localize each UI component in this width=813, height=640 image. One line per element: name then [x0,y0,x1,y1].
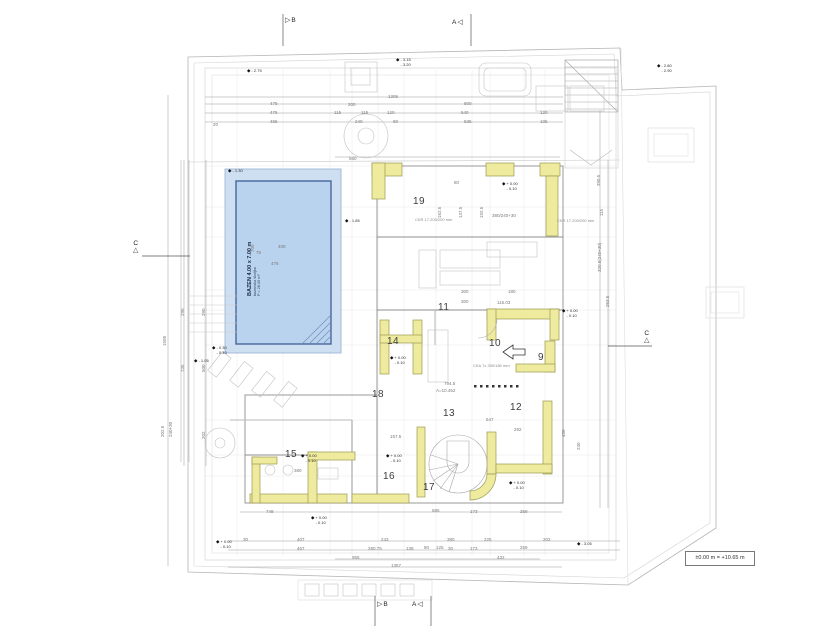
level-marker-icon: ◆ [216,540,219,545]
level-values: + 0.00- 0.10 [390,454,401,463]
room-number-label: 13 [443,408,455,419]
dimension-label: 243 [381,537,389,542]
dimension-label: 300 [461,289,469,294]
annotation-note: CKA 7x 250/180 mm [473,363,510,368]
dimension-label: 432 [497,555,505,560]
dimension-label: 290 [180,308,185,316]
level-value: - 2.75 [251,69,261,74]
section-label: A [452,19,456,26]
room-number-label: 14 [387,336,399,347]
level-marker-icon: ◆ [577,542,580,547]
level-marker-icon: ◆ [396,58,399,63]
room-number-label: 10 [489,338,501,349]
level-value: - 1.05 [198,359,208,364]
dimension-label: 430 [561,429,566,437]
dimension-label: 202 [201,431,206,439]
dimension-label: 200 [348,102,356,107]
dimension-label: 30 [448,546,453,551]
level-values: + 0.00- 0.10 [394,356,405,365]
annotation-layer: 1911141091813121516171305475475455202001… [0,0,813,640]
annotation-note: CKR 17.200/200 mm [557,218,594,223]
dimension-label: 400 [278,244,286,249]
level-marker: ◆- 2.75 [247,69,262,74]
level-marker: ◆- 1.05 [194,359,209,364]
room-number-label: 19 [413,196,425,207]
room-number-label: 16 [383,471,395,482]
level-value: - 0.10 [506,187,517,192]
dimension-label: 794.5 [444,381,455,386]
level-marker-icon: ◆ [301,454,304,459]
level-value: - 1.30 [232,169,242,174]
level-marker-icon: ◆ [228,169,231,174]
dimension-label: 380 [294,468,302,473]
dimension-label: 120 [387,110,395,115]
level-values: - 2.75 [251,69,261,74]
level-values: - 1.05 [198,359,208,364]
level-value: - 3.05 [581,542,591,547]
section-label: B [383,601,387,608]
dimension-label: 20 [213,122,218,127]
dimension-label: 1357 [391,563,401,568]
level-marker-icon: ◆ [194,359,197,364]
level-values: - 0.30- 0.40 [216,346,226,355]
level-value: - 2.90 [661,69,671,74]
level-marker: ◆+ 0.00- 0.10 [390,356,406,365]
level-marker: ◆+ 0.00- 0.10 [311,516,327,525]
section-marker-a: A◁ [412,601,423,608]
level-value: - 0.10 [305,459,316,464]
room-number-label: 11 [438,302,449,313]
level-marker-icon: ◆ [386,454,389,459]
room-number-label: 18 [372,389,384,400]
level-marker: ◆+ 0.00- 0.10 [509,481,525,490]
dimension-label: 240 [576,442,581,450]
dimension-label: 292 [514,427,522,432]
section-label: C [133,240,138,247]
dimension-label: 955 [352,555,360,560]
level-marker-icon: ◆ [390,356,393,361]
dimension-label: 380 [447,537,455,542]
pool-label: BAZEN 4.00 x 7.00 m bazenska školjka P =… [247,186,261,296]
dimension-label: 390.5 [596,175,601,186]
level-marker-icon: ◆ [509,481,512,486]
level-value: - 0.10 [566,314,577,319]
level-marker: ◆- 1.30 [228,169,243,174]
dimension-label: 535 [464,119,472,124]
dimension-label: 180 [508,289,516,294]
dimension-label: 115 [599,209,604,216]
level-value: - 1.85 [349,219,359,224]
level-value: - 0.10 [390,459,401,464]
dimension-label: 280.75 [368,546,382,551]
level-values: + 0.00- 0.10 [513,481,524,490]
level-value: - 3.20 [400,63,410,68]
datum-note: ±0.00 m = +10.65 m [685,551,755,566]
dimension-label: 30 [243,537,248,542]
dimension-label: 137.5 [458,207,463,218]
level-value: - 0.10 [220,545,231,550]
room-number-label: 15 [285,449,297,460]
dimension-label: 407 [297,537,305,542]
dimension-label: 240 [355,119,363,124]
level-values: - 1.30 [232,169,242,174]
level-values: - 2.80- 2.90 [661,64,671,73]
dimension-label: 225 [484,537,492,542]
dimension-label: 120 [540,110,548,115]
pool-area: P = 28.00 m² [257,186,261,296]
level-values: - 3.15- 3.20 [400,58,410,67]
level-values: + 0.00- 0.10 [506,182,517,191]
dimension-label: 115.03 [497,300,510,305]
level-value: - 0.10 [315,521,326,526]
dimension-label: 300 [461,299,469,304]
dimension-label: 80 [454,180,459,185]
room-number-label: 17 [423,482,435,493]
dimension-label: 560 [349,156,357,161]
dimension-label: 320.5(240+30) [597,243,602,272]
section-marker-c: C△ [644,330,649,344]
dimension-label: 1508 [162,336,167,346]
dimension-label: 115 [361,110,368,115]
dimension-label: 475 [271,261,279,266]
level-value: - 0.40 [216,351,226,356]
dimension-label: 115 [334,110,341,115]
dimension-label: 202 [543,537,551,542]
section-marker-b: ▷B [285,17,296,24]
dimension-label: 467 [297,546,305,551]
level-value: - 0.10 [513,486,524,491]
dimension-label: 1305 [388,94,398,99]
dimension-label: 192.5 [479,207,484,218]
level-marker: ◆+ 0.00- 0.10 [301,454,317,463]
section-marker-a: A◁ [452,19,463,26]
section-flag-icon: ◁ [457,19,462,26]
level-marker-icon: ◆ [502,182,505,187]
dimension-label: 125 [436,545,444,550]
level-marker-icon: ◆ [212,346,215,351]
dimension-label: 685 [432,508,440,513]
level-marker: ◆+ 0.00- 0.10 [216,540,232,549]
level-marker: ◆- 0.30- 0.40 [212,346,227,355]
section-flag-icon: △ [644,337,649,344]
section-label: A [412,601,416,608]
dimension-label: 157.5 [390,434,401,439]
level-values: + 0.00- 0.10 [220,540,231,549]
section-marker-b: ▷B [377,601,388,608]
room-number-label: 12 [510,402,522,413]
dimension-label: 455 [270,119,278,124]
level-marker-icon: ◆ [311,516,314,521]
dimension-label: 259 [520,509,528,514]
dimension-label: 475 [270,110,278,115]
dimension-label: 173 [470,546,478,551]
dimension-label: 263.5 [605,296,610,307]
dimension-label: 500 [201,364,206,372]
level-values: + 0.00- 0.10 [315,516,326,525]
section-flag-icon: ◁ [417,601,422,608]
level-values: + 0.00- 0.10 [566,309,577,318]
dimension-label: 380/240+30 [492,213,516,218]
dimension-label: 735 [180,364,185,372]
dimension-label: 800 [464,101,472,106]
dimension-label: 80 [393,119,398,124]
section-marker-c: C△ [133,240,138,254]
section-label: C [644,330,649,337]
level-marker-icon: ◆ [247,69,250,74]
level-marker: ◆- 3.15- 3.20 [396,58,411,67]
dimension-label: 202.5 [160,426,165,437]
dimension-label: 105 [540,119,548,124]
level-marker-icon: ◆ [657,64,660,69]
section-flag-icon: △ [133,247,138,254]
dimension-label: A=10.452 [436,388,455,393]
dimension-label: 547 [486,417,494,422]
level-marker: ◆+ 0.00- 0.10 [386,454,402,463]
section-label: B [291,17,295,24]
level-marker: ◆- 1.85 [345,219,360,224]
dimension-label: 290 [201,308,206,316]
section-flag-icon: ▷ [285,17,290,24]
level-value: - 0.10 [394,361,405,366]
dimension-label: 80 [424,545,429,550]
room-number-label: 9 [538,352,544,363]
dimension-label: 748 [266,509,274,514]
level-marker: ◆- 3.05 [577,542,592,547]
dimension-label: 173 [470,509,478,514]
level-marker-icon: ◆ [345,219,348,224]
dimension-label: 259 [520,545,528,550]
level-marker: ◆- 2.80- 2.90 [657,64,672,73]
section-flag-icon: ▷ [377,601,382,608]
dimension-label: 475 [270,101,278,106]
level-marker: ◆+ 0.00- 0.10 [502,182,518,191]
level-marker-icon: ◆ [562,309,565,314]
level-values: + 0.00- 0.10 [305,454,316,463]
dimension-label: 138 [406,546,414,551]
dimension-label: 240+30 [168,422,173,437]
dimension-label: 540 [461,110,469,115]
floor-plan-canvas: 1911141091813121516171305475475455202001… [0,0,813,640]
level-values: - 3.05 [581,542,591,547]
level-marker: ◆+ 0.00- 0.10 [562,309,578,318]
annotation-note: CKR 17.200/200 mm [415,217,452,222]
level-values: - 1.85 [349,219,359,224]
